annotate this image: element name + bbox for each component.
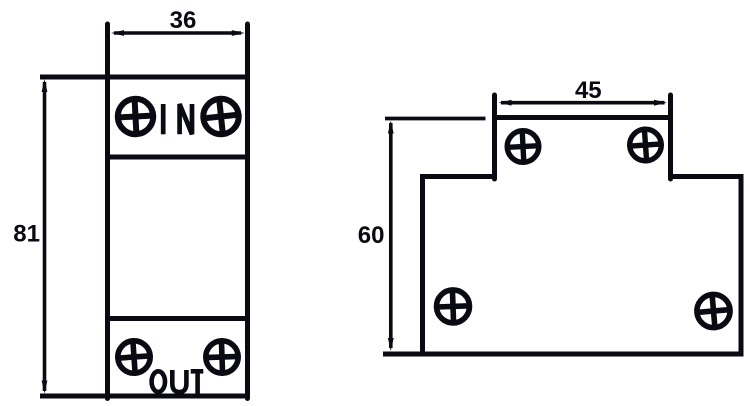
svg-text:60: 60 bbox=[358, 222, 385, 249]
svg-text:81: 81 bbox=[13, 221, 40, 248]
svg-text:45: 45 bbox=[575, 77, 602, 104]
svg-text:36: 36 bbox=[170, 7, 197, 34]
